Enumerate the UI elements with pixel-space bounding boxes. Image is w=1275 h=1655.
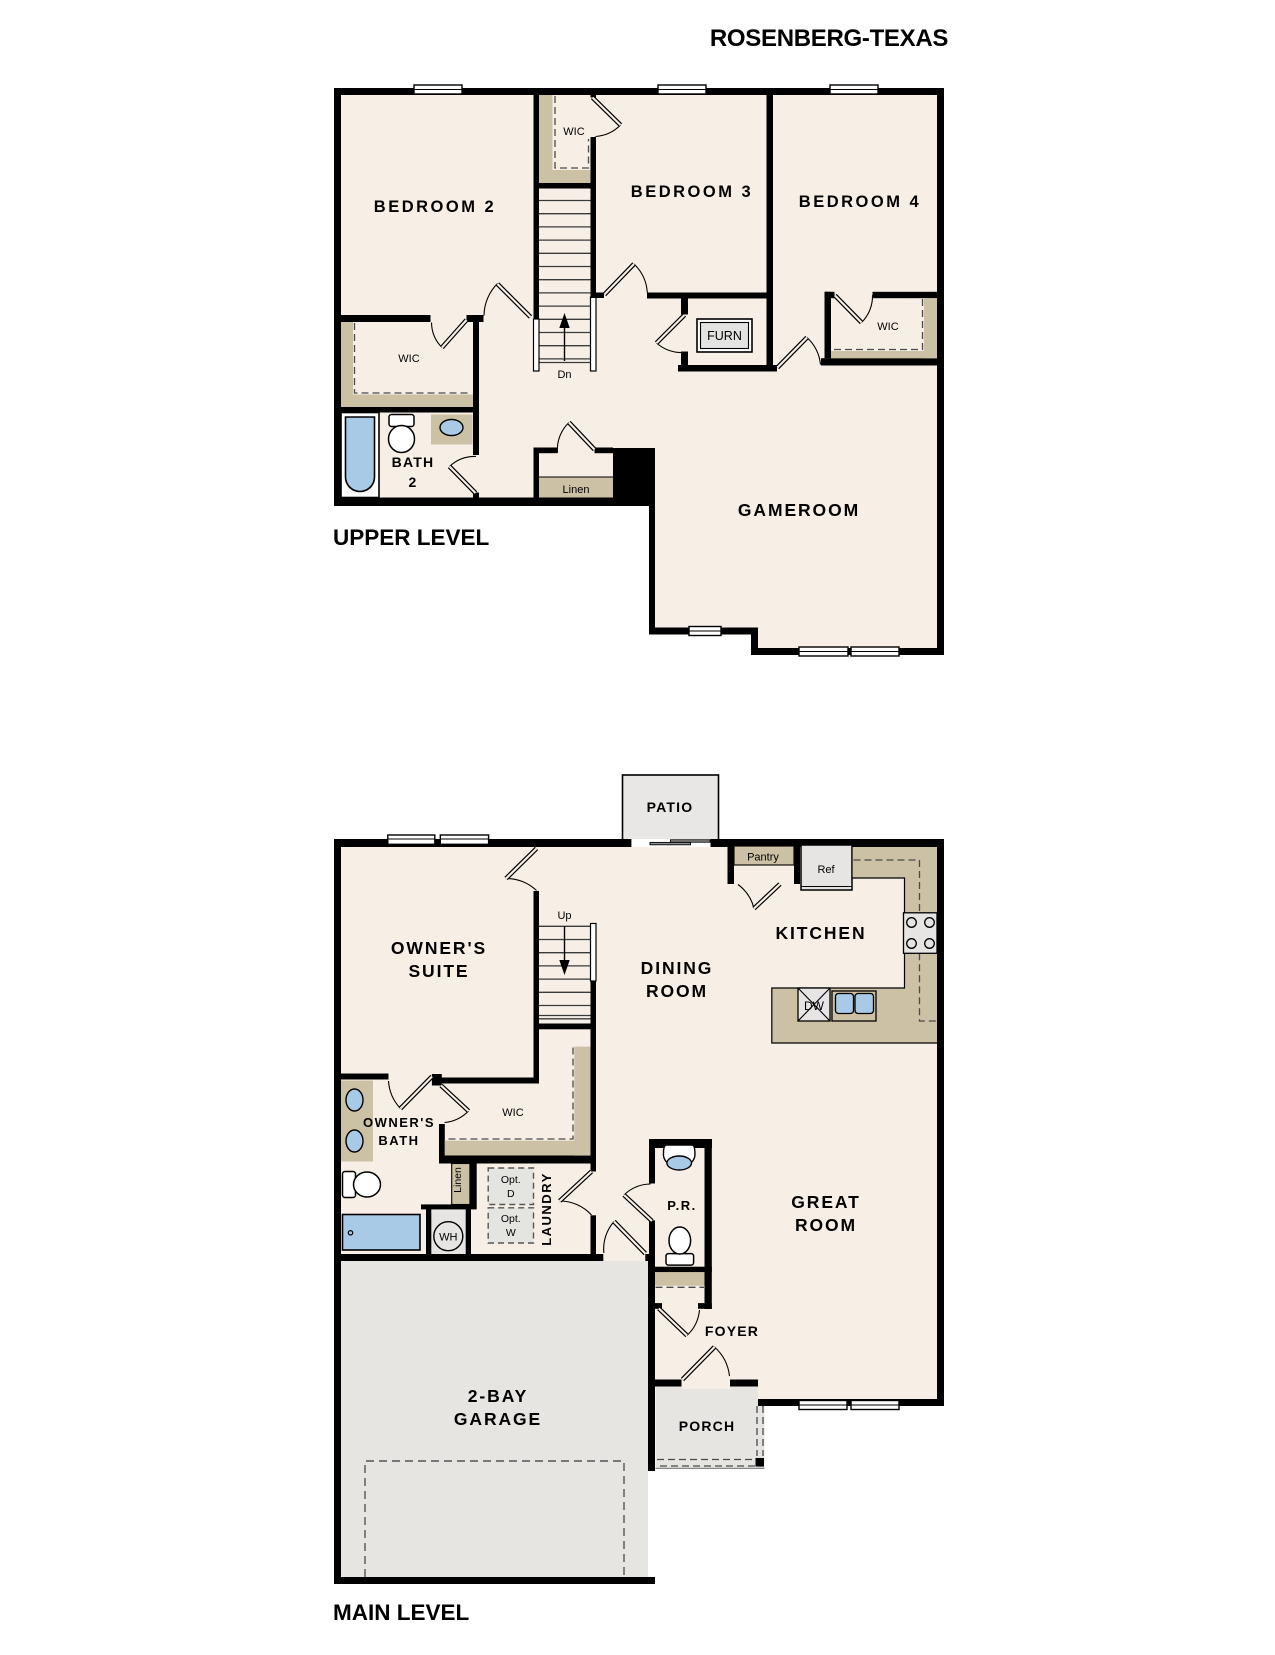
- svg-text:MAIN LEVEL: MAIN LEVEL: [333, 1600, 470, 1625]
- svg-text:UPPER LEVEL: UPPER LEVEL: [333, 525, 490, 550]
- svg-text:FURN: FURN: [707, 329, 742, 343]
- svg-text:ROOM: ROOM: [795, 1215, 857, 1235]
- svg-text:P.R.: P.R.: [667, 1198, 697, 1213]
- svg-text:Opt.: Opt.: [501, 1174, 521, 1186]
- svg-text:ROOM: ROOM: [646, 981, 708, 1001]
- svg-text:GREAT: GREAT: [791, 1192, 860, 1212]
- svg-text:Linen: Linen: [452, 1167, 464, 1193]
- svg-text:GARAGE: GARAGE: [454, 1409, 542, 1429]
- svg-text:Linen: Linen: [563, 484, 590, 496]
- svg-text:WH: WH: [439, 1232, 457, 1244]
- svg-text:BEDROOM 4: BEDROOM 4: [799, 193, 921, 211]
- svg-text:ROSENBERG-TEXAS: ROSENBERG-TEXAS: [710, 25, 948, 52]
- svg-text:FOYER: FOYER: [705, 1323, 759, 1339]
- svg-text:W: W: [506, 1227, 516, 1239]
- svg-text:BEDROOM 3: BEDROOM 3: [631, 183, 753, 201]
- svg-text:GAMEROOM: GAMEROOM: [738, 500, 860, 520]
- svg-text:BATH: BATH: [378, 1133, 419, 1148]
- svg-text:BATH: BATH: [392, 454, 435, 470]
- svg-text:WIC: WIC: [563, 126, 584, 138]
- svg-text:SUITE: SUITE: [408, 961, 469, 981]
- svg-text:WIC: WIC: [877, 321, 898, 333]
- svg-text:Pantry: Pantry: [747, 852, 779, 864]
- svg-text:BEDROOM 2: BEDROOM 2: [374, 198, 496, 216]
- svg-text:Dn: Dn: [557, 369, 571, 381]
- svg-text:Ref: Ref: [817, 864, 835, 876]
- svg-text:OWNER'S: OWNER'S: [363, 1115, 435, 1130]
- svg-text:2-BAY: 2-BAY: [468, 1386, 528, 1406]
- svg-text:WIC: WIC: [502, 1107, 523, 1119]
- svg-text:D: D: [507, 1188, 515, 1200]
- svg-text:2: 2: [409, 474, 418, 490]
- svg-text:DINING: DINING: [641, 958, 714, 978]
- svg-text:Up: Up: [557, 910, 571, 922]
- svg-text:PORCH: PORCH: [679, 1418, 736, 1434]
- svg-text:OWNER'S: OWNER'S: [391, 938, 487, 958]
- svg-text:WIC: WIC: [398, 353, 419, 365]
- svg-text:LAUNDRY: LAUNDRY: [539, 1172, 554, 1246]
- svg-text:KITCHEN: KITCHEN: [775, 923, 866, 943]
- svg-text:Opt.: Opt.: [501, 1213, 521, 1225]
- svg-text:DW: DW: [804, 999, 825, 1013]
- svg-text:PATIO: PATIO: [647, 799, 694, 815]
